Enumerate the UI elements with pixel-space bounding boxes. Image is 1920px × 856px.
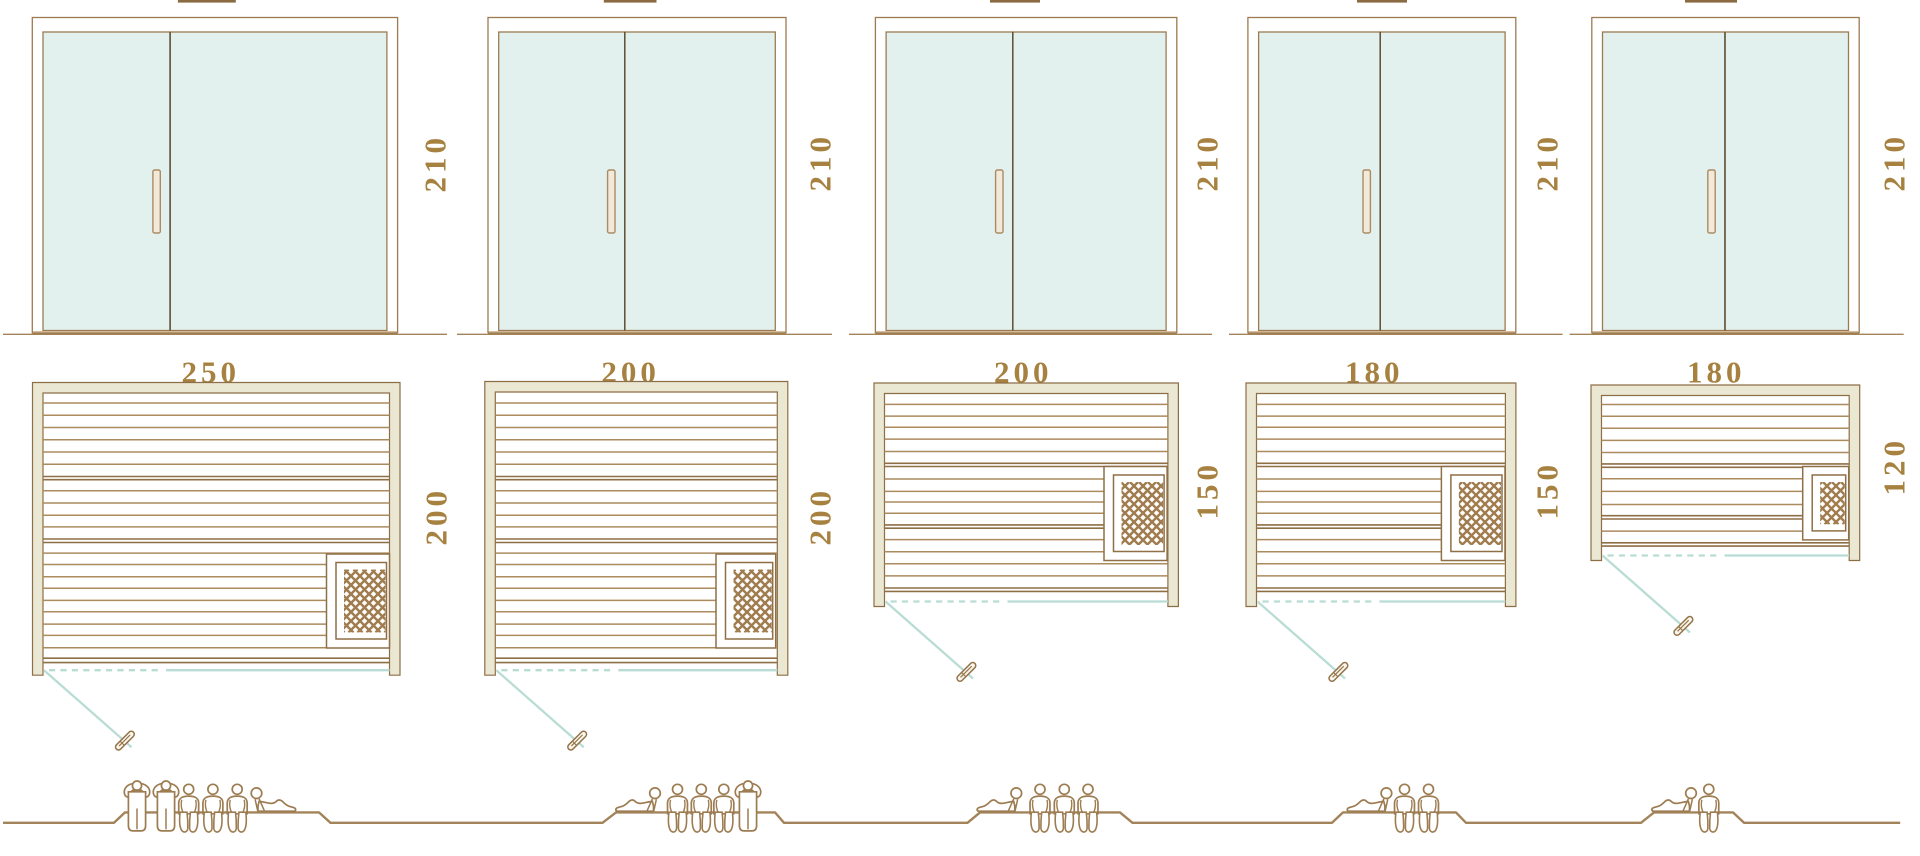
svg-text:150: 150 — [1530, 461, 1565, 520]
svg-text:200: 200 — [803, 487, 838, 546]
svg-text:150: 150 — [1190, 461, 1225, 520]
svg-text:180: 180 — [1687, 354, 1746, 389]
svg-text:210: 210 — [803, 133, 838, 192]
svg-text:120: 120 — [1877, 437, 1912, 496]
svg-text:210: 210 — [1190, 133, 1225, 192]
svg-text:210: 210 — [418, 134, 453, 193]
svg-text:210: 210 — [1530, 133, 1565, 192]
svg-text:200: 200 — [419, 487, 454, 546]
svg-text:210: 210 — [1877, 133, 1912, 192]
